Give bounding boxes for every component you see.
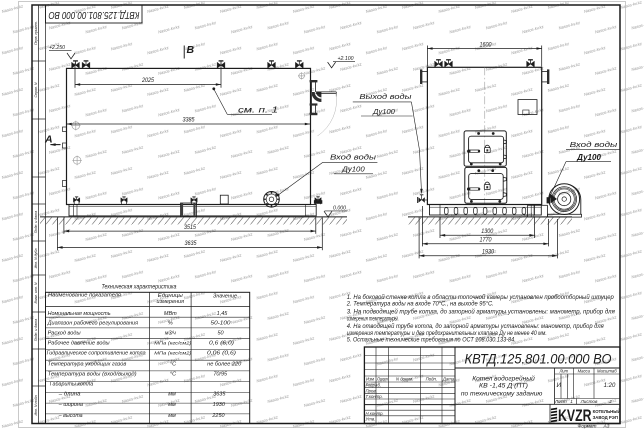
svg-text:5. Остальные технические треб: 5. Остальные технические требования по О… [347, 337, 516, 344]
svg-text:°С: °С [170, 362, 176, 368]
svg-text:3635: 3635 [213, 391, 226, 397]
svg-text:70/95: 70/95 [213, 372, 228, 378]
svg-text:Наименование показателя: Наименование показателя [48, 293, 121, 299]
svg-text:Инв. N подл.: Инв. N подл. [34, 394, 38, 415]
svg-text:1: 1 [570, 399, 573, 404]
svg-text:И: И [557, 382, 562, 389]
svg-text:МПа (кгс/см2): МПа (кгс/см2) [154, 341, 191, 347]
svg-text:А3: А3 [603, 424, 610, 430]
svg-text:1,45: 1,45 [217, 311, 229, 317]
svg-text:м3/ч: м3/ч [165, 330, 176, 336]
svg-text:Масштаб: Масштаб [597, 369, 617, 374]
svg-text:Листов: Листов [580, 399, 598, 404]
svg-text:Подп. и дата: Подп. и дата [34, 319, 38, 342]
svg-text:– ширина: – ширина [58, 402, 83, 408]
svg-text:Вход воды: Вход воды [570, 140, 618, 149]
svg-text:– высота: – высота [58, 413, 83, 419]
svg-text:Ду100: Ду100 [341, 165, 365, 174]
svg-text:измерения: измерения [157, 299, 185, 305]
svg-text:Диапазон рабочего регулировани: Диапазон рабочего регулирования [47, 321, 139, 327]
svg-text:Температура уходящих газов: Температура уходящих газов [48, 362, 127, 368]
svg-text:Температура воды (вход/выход): Температура воды (вход/выход) [48, 372, 137, 378]
svg-text:Перв. примен.: Перв. примен. [34, 21, 38, 45]
svg-text:Изм: Изм [366, 377, 374, 382]
svg-text:МПа (кгс/см2): МПа (кгс/см2) [154, 350, 191, 356]
svg-text:2. Температура воды на входе: 2. Температура воды на входе 70°С., на в… [346, 301, 494, 308]
svg-text:ЗАВОД РЭП: ЗАВОД РЭП [593, 415, 618, 420]
svg-text:Разраб.: Разраб. [366, 383, 382, 388]
svg-text:Номинальная мощность: Номинальная мощность [48, 311, 111, 317]
svg-text:Ду100: Ду100 [372, 107, 395, 116]
svg-text:2250: 2250 [211, 413, 225, 419]
svg-text:Дата: Дата [442, 377, 455, 382]
svg-text:Подп. и дата: Подп. и дата [34, 211, 38, 234]
svg-text:3385: 3385 [183, 117, 195, 124]
svg-text:+2.250: +2.250 [49, 45, 65, 51]
svg-text:МВт: МВт [164, 311, 177, 317]
svg-text:2025: 2025 [141, 77, 154, 84]
svg-text:1930: 1930 [213, 402, 226, 408]
svg-text:KVZR: KVZR [558, 407, 592, 425]
svg-text:Утв.: Утв. [366, 417, 376, 422]
svg-text:Т.контр.: Т.контр. [366, 394, 383, 399]
svg-text:Выход воды: Выход воды [359, 92, 411, 101]
svg-text:измерения температуры.: измерения температуры. [347, 315, 399, 322]
svg-text:0,06 (0,6): 0,06 (0,6) [207, 350, 236, 356]
svg-text:КВТД.125.801.00.000 ВО: КВТД.125.801.00.000 ВО [465, 351, 612, 367]
svg-text:В: В [187, 44, 195, 56]
svg-text:А: А [44, 133, 53, 145]
svg-text:Лист: Лист [554, 399, 567, 404]
svg-text:мм: мм [168, 402, 176, 408]
svg-text:Пров.: Пров. [366, 389, 377, 394]
svg-text:Формат: Формат [578, 424, 597, 430]
svg-text:Гидравлическое сопротивление к: Гидравлическое сопротивление котла [47, 350, 146, 356]
svg-text:Подп.: Подп. [426, 377, 437, 382]
svg-text:N докум.: N докум. [396, 377, 413, 382]
svg-text:3515: 3515 [184, 224, 196, 231]
svg-text:1300: 1300 [481, 228, 493, 235]
svg-text:50-100: 50-100 [211, 321, 232, 327]
svg-text:Инв. N дубл.: Инв. N дубл. [34, 248, 38, 269]
svg-text:– длина: – длина [58, 391, 81, 397]
svg-text:мм: мм [168, 391, 176, 397]
svg-text:КВ -1,45 Д (ПТ): КВ -1,45 Д (ПТ) [479, 382, 528, 389]
svg-text:Рабочее давление воды: Рабочее давление воды [48, 341, 110, 347]
svg-text:Котел водогрейный: Котел водогрейный [472, 374, 535, 382]
svg-text:0,6 (6,0): 0,6 (6,0) [209, 341, 234, 347]
svg-text:Масса: Масса [578, 369, 591, 374]
svg-text:2: 2 [608, 399, 612, 404]
svg-text:Вход воды: Вход воды [330, 152, 376, 161]
svg-text:°С: °С [170, 372, 176, 378]
svg-text:Ду100: Ду100 [576, 153, 602, 162]
svg-text:Техническая характеристика: Техническая характеристика [102, 284, 177, 291]
svg-text:Габариты котла: Габариты котла [50, 381, 93, 387]
svg-text:Взам. инв. N: Взам. инв. N [34, 282, 38, 303]
svg-text:мм: мм [168, 413, 176, 419]
svg-text:КОТЕЛЬНЫЙ: КОТЕЛЬНЫЙ [593, 409, 621, 414]
svg-text:КВТД.125.801.00.000 ВО: КВТД.125.801.00.000 ВО [49, 9, 140, 20]
svg-text:%: % [168, 321, 173, 327]
svg-text:1770: 1770 [480, 237, 492, 244]
svg-text:1:20: 1:20 [604, 383, 616, 389]
svg-text:Справ. N: Справ. N [34, 82, 38, 97]
svg-text:50: 50 [217, 330, 224, 336]
svg-text:1930: 1930 [482, 248, 494, 255]
svg-text:см. п. 1: см. п. 1 [238, 104, 278, 114]
svg-text:Н.контр.: Н.контр. [366, 411, 384, 416]
svg-text:не более 220: не более 220 [207, 362, 242, 368]
svg-text:по техническому заданию: по техническому заданию [461, 389, 543, 397]
svg-text:1600: 1600 [480, 41, 492, 48]
svg-text:Значение: Значение [213, 294, 237, 300]
svg-text:3635: 3635 [185, 240, 197, 247]
svg-text:Лит: Лит [558, 369, 568, 374]
svg-text:Расход воды: Расход воды [48, 330, 81, 336]
svg-text:Лист: Лист [376, 377, 388, 382]
